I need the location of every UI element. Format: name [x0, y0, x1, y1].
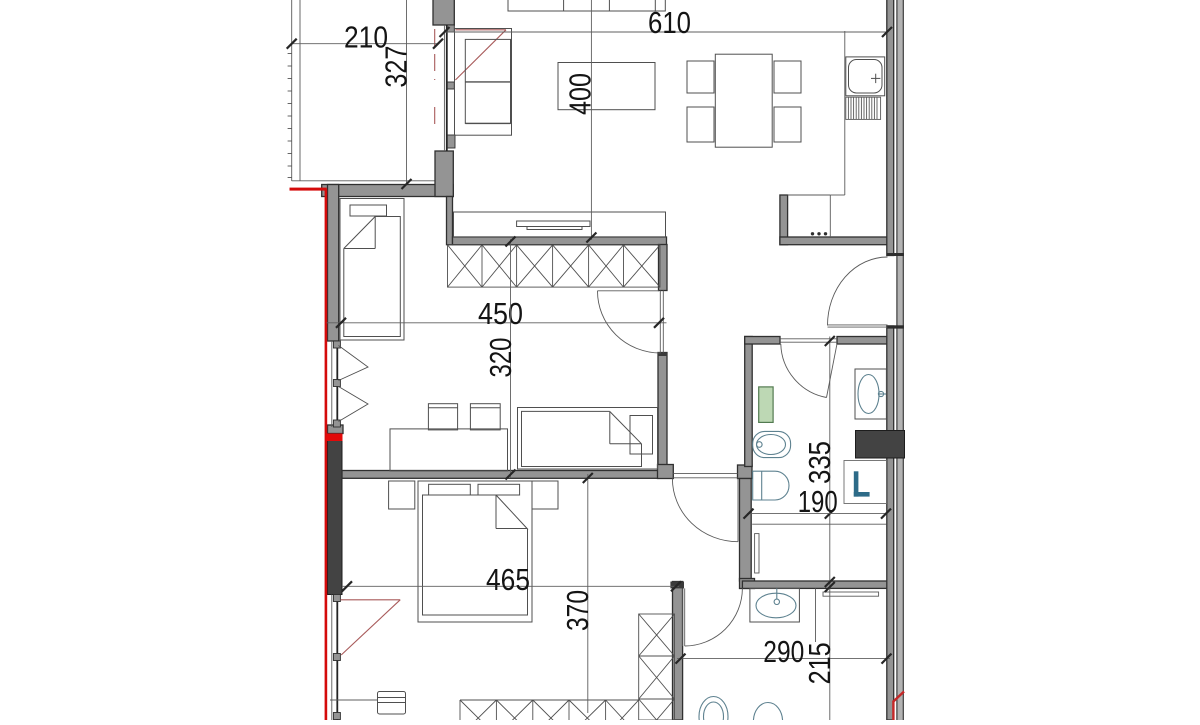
svg-text:290: 290: [763, 634, 804, 669]
svg-text:327: 327: [379, 46, 414, 88]
svg-text:400: 400: [563, 73, 598, 115]
svg-text:465: 465: [486, 562, 530, 597]
svg-text:610: 610: [648, 5, 691, 40]
svg-text:450: 450: [478, 296, 523, 331]
svg-text:190: 190: [798, 484, 838, 519]
svg-text:335: 335: [802, 441, 837, 484]
svg-text:320: 320: [483, 338, 518, 378]
svg-text:215: 215: [802, 642, 837, 684]
svg-text:370: 370: [560, 590, 595, 631]
